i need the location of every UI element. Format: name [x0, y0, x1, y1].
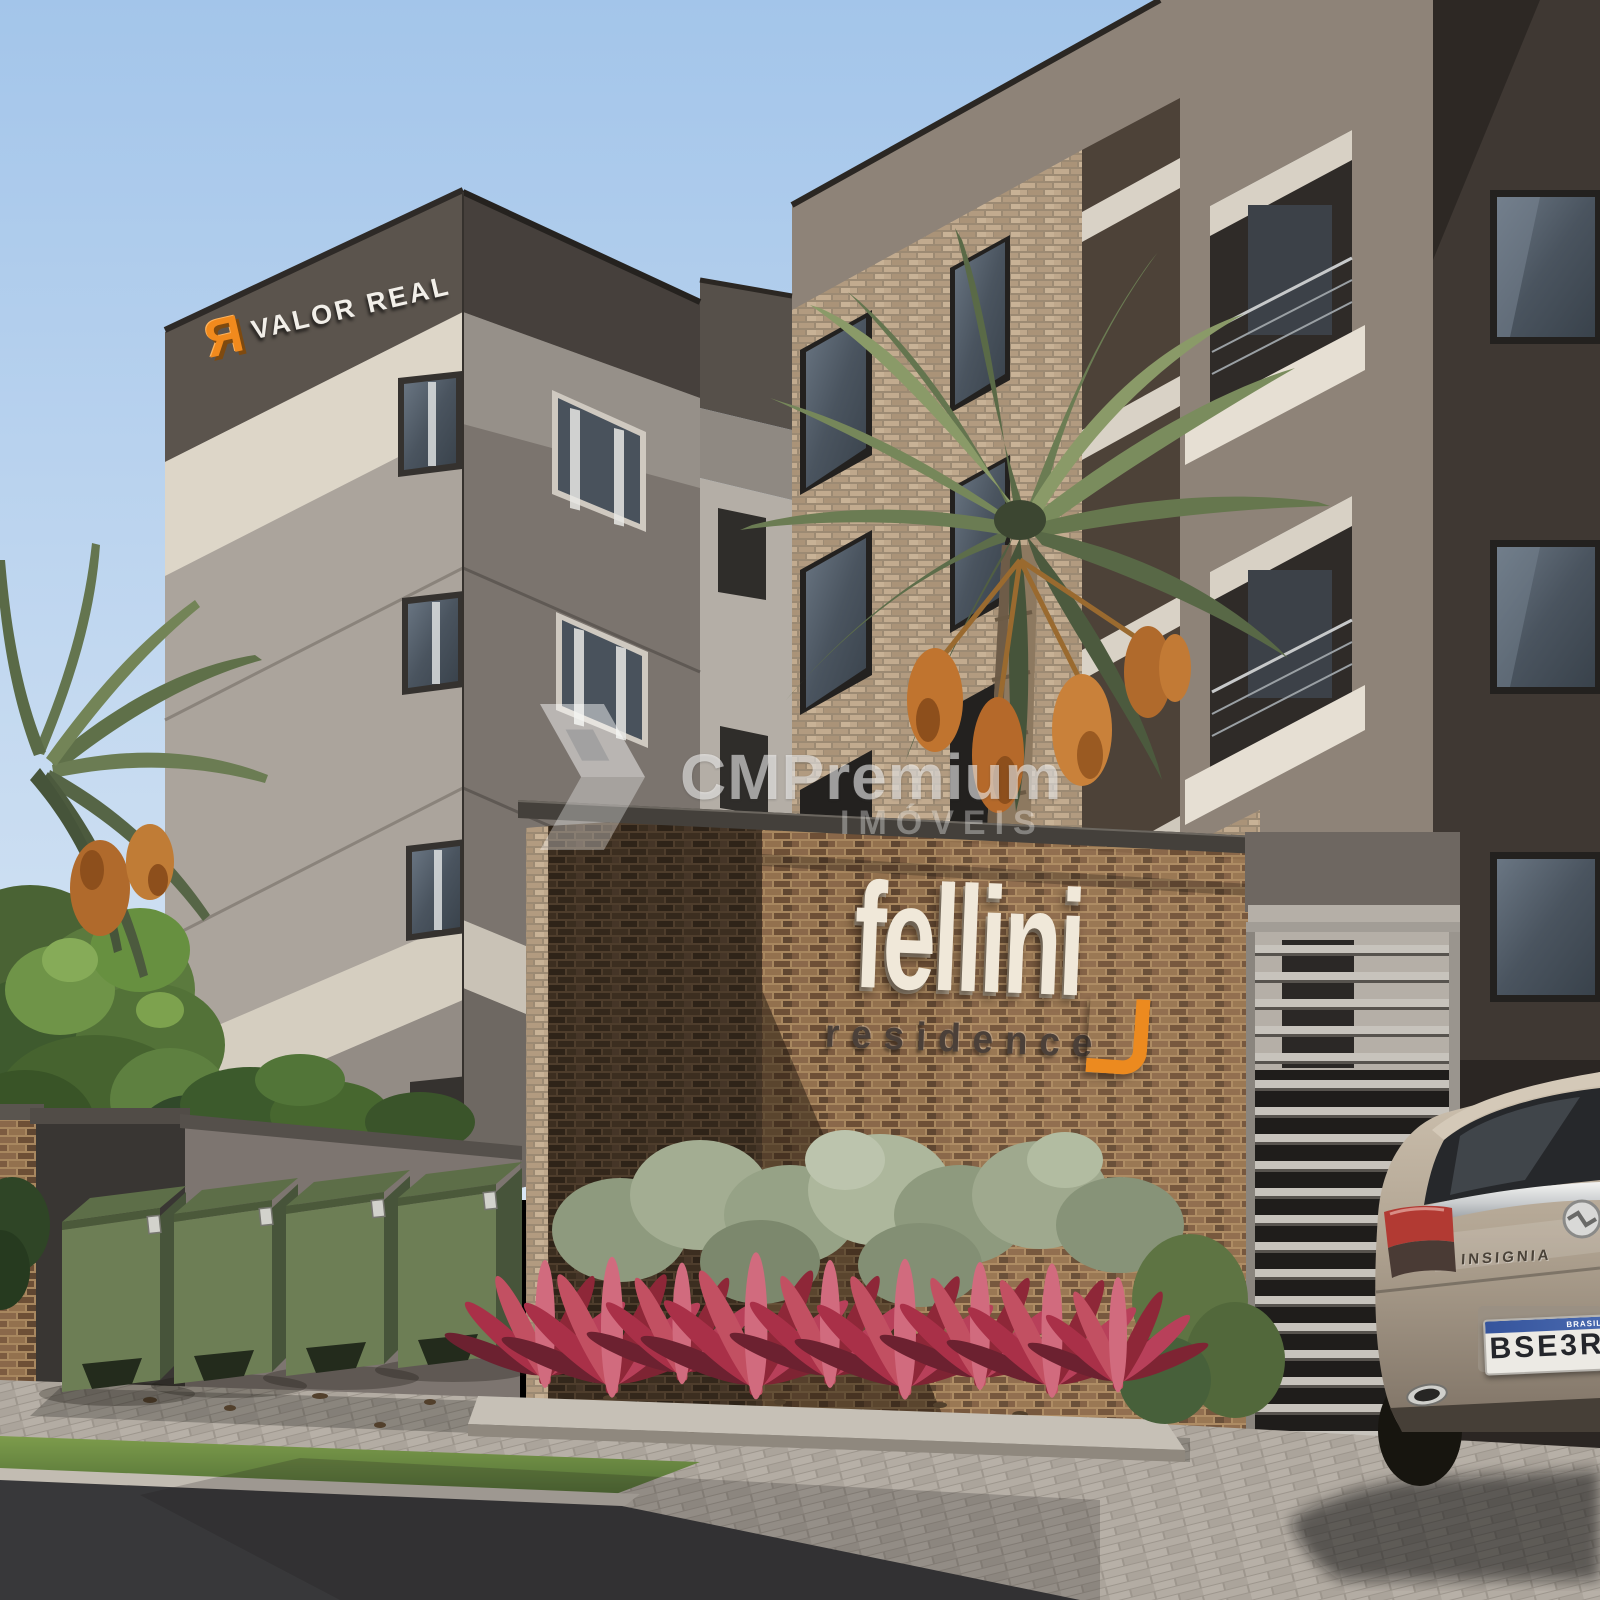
- render-image: Я VALOR REAL CMPremium IMÓVEIS fellini r…: [0, 0, 1600, 1600]
- license-plate: BRASIL BSE3R: [1483, 1314, 1600, 1375]
- orange-corner-bracket-icon: [1085, 996, 1150, 1076]
- license-plate-number: BSE3R: [1485, 1327, 1600, 1366]
- cm-premium-arrow-icon: [540, 702, 645, 852]
- watermark-brand: CMPremium: [680, 740, 1062, 814]
- far-right-windows: [1490, 190, 1600, 1002]
- watermark: CMPremium IMÓVEIS: [540, 692, 1020, 862]
- entrance-sign-title: fellini: [852, 864, 1086, 1015]
- watermark-subtitle: IMÓVEIS: [840, 804, 1045, 843]
- entrance-sign: fellini residence: [691, 858, 1243, 1072]
